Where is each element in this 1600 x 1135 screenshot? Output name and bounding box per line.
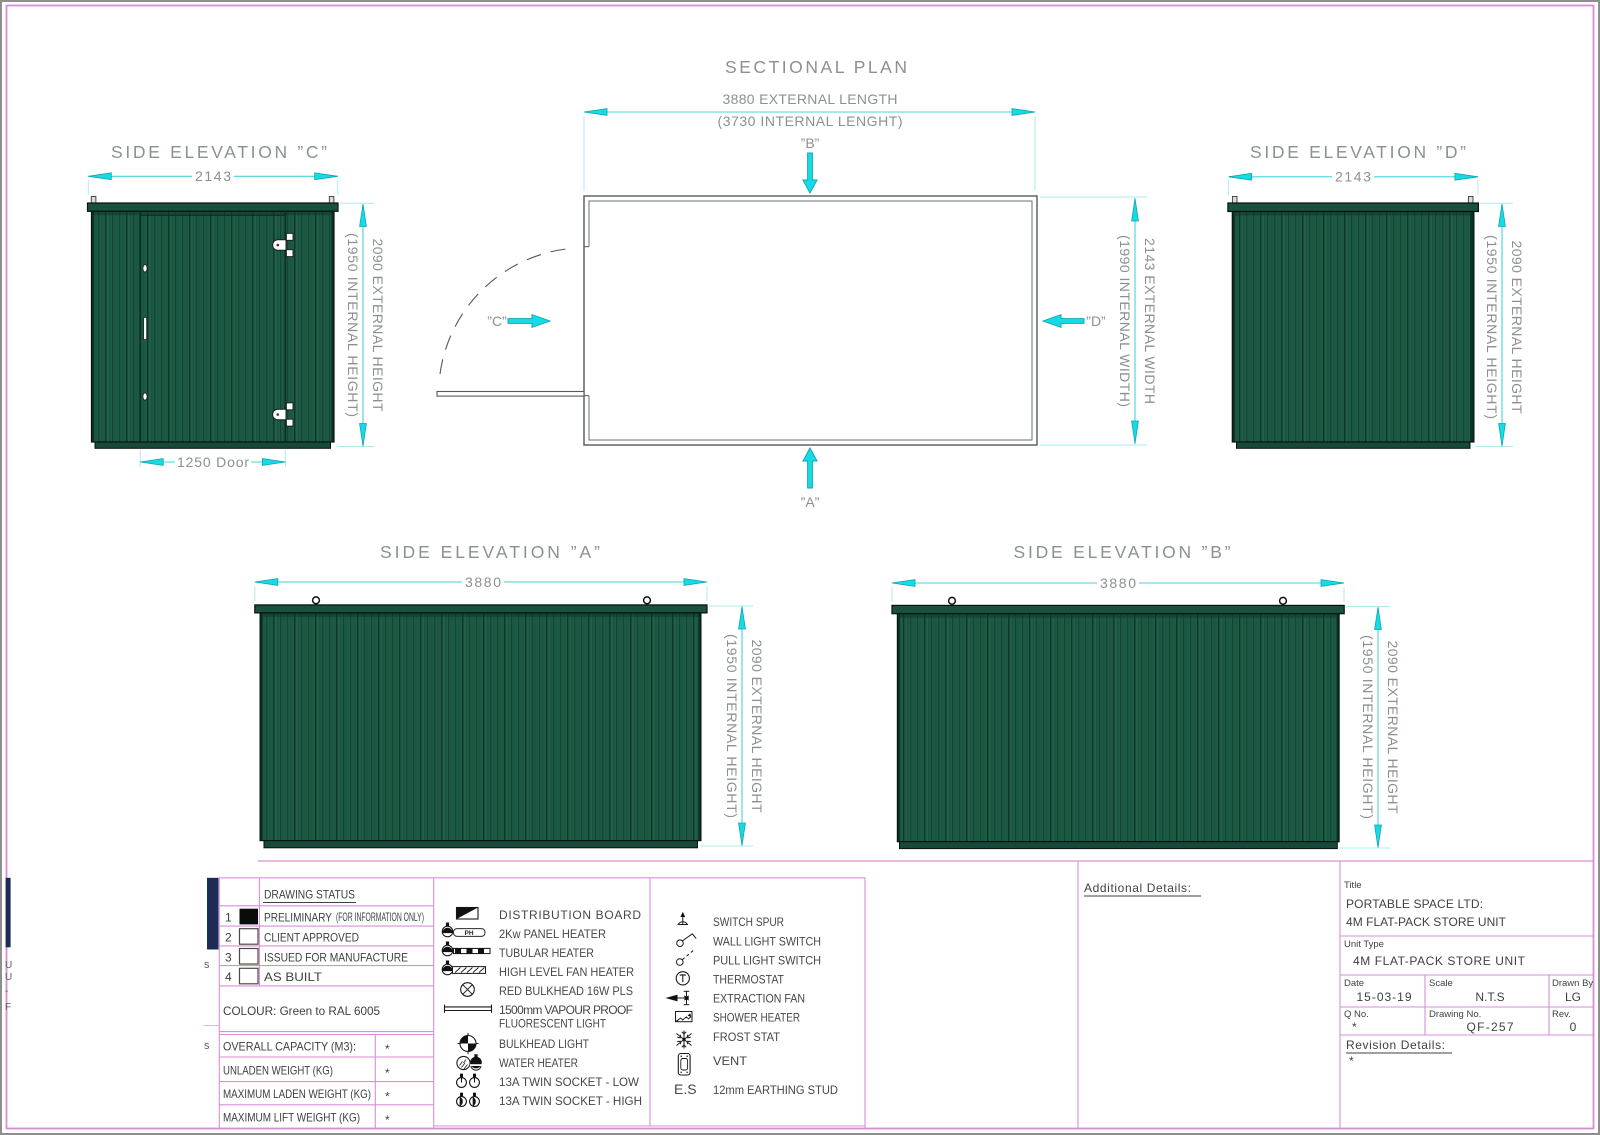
- svg-text:WATER HEATER: WATER HEATER: [499, 1056, 578, 1070]
- svg-text:U: U: [5, 972, 12, 983]
- svg-text:SWITCH SPUR: SWITCH SPUR: [713, 915, 784, 929]
- svg-text:UNLADEN WEIGHT (KG): UNLADEN WEIGHT (KG): [223, 1064, 333, 1078]
- svg-text:BULKHEAD LIGHT: BULKHEAD LIGHT: [499, 1037, 590, 1051]
- svg-text:SIDE ELEVATION ”A”: SIDE ELEVATION ”A”: [380, 542, 600, 562]
- svg-text:DRAWING STATUS: DRAWING STATUS: [264, 888, 355, 902]
- svg-text:Q No.: Q No.: [1344, 1009, 1369, 1020]
- svg-text:3880: 3880: [465, 574, 501, 590]
- svg-text:*: *: [385, 1113, 390, 1127]
- svg-text:PRELIMINARY: PRELIMINARY: [264, 911, 332, 925]
- svg-text:4: 4: [225, 970, 232, 984]
- svg-text:TUBULAR HEATER: TUBULAR HEATER: [499, 946, 594, 960]
- svg-text:15-03-19: 15-03-19: [1357, 990, 1412, 1004]
- svg-text:(3730 INTERNAL LENGHT): (3730 INTERNAL LENGHT): [718, 113, 903, 129]
- svg-text:Rev.: Rev.: [1552, 1009, 1571, 1020]
- svg-text:2090 EXTERNAL HEIGHT: 2090 EXTERNAL HEIGHT: [1385, 641, 1401, 814]
- svg-text:Scale: Scale: [1429, 978, 1453, 989]
- svg-text:4M FLAT-PACK STORE UNIT: 4M FLAT-PACK STORE UNIT: [1346, 915, 1507, 929]
- svg-text:F: F: [5, 1002, 11, 1013]
- svg-text:(1950 INTERNAL HEIGHT): (1950 INTERNAL HEIGHT): [345, 233, 361, 417]
- svg-text:2: 2: [225, 931, 232, 945]
- svg-text:(1950 INTERNAL HEIGHT): (1950 INTERNAL HEIGHT): [724, 634, 740, 818]
- svg-text:13A TWIN SOCKET - LOW: 13A TWIN SOCKET - LOW: [499, 1075, 640, 1089]
- svg-text:PULL LIGHT SWITCH: PULL LIGHT SWITCH: [713, 954, 821, 968]
- svg-text:3: 3: [225, 950, 232, 964]
- svg-text:*: *: [385, 1042, 390, 1056]
- svg-text:DISTRIBUTION BOARD: DISTRIBUTION BOARD: [499, 908, 641, 922]
- svg-text:”D”: ”D”: [1086, 313, 1106, 329]
- svg-text:”C”: ”C”: [487, 313, 507, 329]
- svg-text:SIDE ELEVATION ”B”: SIDE ELEVATION ”B”: [1014, 542, 1231, 562]
- svg-text:AS BUILT: AS BUILT: [264, 970, 323, 984]
- svg-text:2090 EXTERNAL HEIGHT: 2090 EXTERNAL HEIGHT: [370, 239, 386, 412]
- svg-text:(1950 INTERNAL HEIGHT): (1950 INTERNAL HEIGHT): [1360, 635, 1376, 819]
- svg-text:1500mm VAPOUR PROOF: 1500mm VAPOUR PROOF: [499, 1003, 633, 1017]
- svg-text:-: -: [5, 986, 8, 997]
- svg-text:*: *: [1349, 1054, 1354, 1068]
- svg-text:FLUORESCENT LIGHT: FLUORESCENT LIGHT: [499, 1017, 607, 1031]
- svg-text:WALL LIGHT SWITCH: WALL LIGHT SWITCH: [713, 935, 821, 949]
- svg-text:PH: PH: [464, 930, 473, 937]
- svg-text:2143: 2143: [1335, 169, 1371, 185]
- svg-text:MAXIMUM LADEN WEIGHT (KG): MAXIMUM LADEN WEIGHT (KG): [223, 1087, 371, 1101]
- svg-text:*: *: [1352, 1020, 1357, 1034]
- svg-text:2090 EXTERNAL HEIGHT: 2090 EXTERNAL HEIGHT: [1509, 241, 1525, 414]
- svg-text:2Kw PANEL HEATER: 2Kw PANEL HEATER: [499, 927, 606, 941]
- svg-text:VENT: VENT: [713, 1054, 748, 1068]
- svg-text:”A”: ”A”: [801, 494, 820, 510]
- svg-text:”B”: ”B”: [801, 135, 820, 151]
- svg-text:Additional Details:: Additional Details:: [1084, 881, 1191, 895]
- svg-text:Date: Date: [1344, 978, 1364, 989]
- svg-text:THERMOSTAT: THERMOSTAT: [713, 973, 785, 987]
- svg-text:Drawn By: Drawn By: [1552, 978, 1593, 989]
- svg-text:OVERALL CAPACITY (M3):: OVERALL CAPACITY (M3):: [223, 1040, 356, 1054]
- svg-text:Revision Details:: Revision Details:: [1346, 1038, 1445, 1052]
- svg-text:s: s: [204, 959, 210, 971]
- svg-text:Drawing No.: Drawing No.: [1429, 1009, 1481, 1020]
- svg-text:RED BULKHEAD 16W PLS: RED BULKHEAD 16W PLS: [499, 984, 633, 998]
- svg-text:(FOR INFORMATION ONLY): (FOR INFORMATION ONLY): [336, 910, 424, 924]
- svg-text:3880: 3880: [1100, 575, 1136, 591]
- svg-text:Unit Type: Unit Type: [1344, 939, 1384, 950]
- svg-text:12mm EARTHING STUD: 12mm EARTHING STUD: [713, 1083, 838, 1097]
- svg-text:1250 Door: 1250 Door: [177, 454, 249, 470]
- svg-text:s: s: [204, 1040, 210, 1052]
- svg-text:2090 EXTERNAL HEIGHT: 2090 EXTERNAL HEIGHT: [749, 640, 765, 813]
- svg-text:(1990 INTERNAL WIDTH): (1990 INTERNAL WIDTH): [1117, 235, 1133, 407]
- svg-text:2143: 2143: [195, 168, 231, 184]
- svg-text:(1950 INTERNAL HEIGHT): (1950 INTERNAL HEIGHT): [1484, 235, 1500, 419]
- svg-text:U: U: [5, 960, 12, 971]
- svg-text:0: 0: [1570, 1020, 1577, 1034]
- svg-text:QF-257: QF-257: [1467, 1020, 1514, 1034]
- svg-text:N.T.S: N.T.S: [1475, 990, 1504, 1004]
- svg-text:13A TWIN SOCKET - HIGH: 13A TWIN SOCKET - HIGH: [499, 1094, 642, 1108]
- svg-text:SHOWER HEATER: SHOWER HEATER: [713, 1011, 800, 1025]
- svg-text:CLIENT APPROVED: CLIENT APPROVED: [264, 931, 359, 945]
- svg-text:MAXIMUM LIFT WEIGHT (KG): MAXIMUM LIFT WEIGHT (KG): [223, 1111, 360, 1125]
- svg-text:COLOUR: Green to RAL 6005: COLOUR: Green to RAL 6005: [223, 1004, 380, 1018]
- svg-text:PORTABLE SPACE LTD:: PORTABLE SPACE LTD:: [1346, 897, 1483, 911]
- svg-text:EXTRACTION FAN: EXTRACTION FAN: [713, 992, 805, 1006]
- svg-text:Title: Title: [1344, 880, 1362, 891]
- svg-text:E.S: E.S: [674, 1081, 697, 1097]
- svg-text:HIGH LEVEL FAN HEATER: HIGH LEVEL FAN HEATER: [499, 965, 634, 979]
- svg-text:2143 EXTERNAL WIDTH: 2143 EXTERNAL WIDTH: [1142, 238, 1158, 404]
- svg-text:ISSUED FOR MANUFACTURE: ISSUED FOR MANUFACTURE: [264, 950, 408, 964]
- svg-text:FROST STAT: FROST STAT: [713, 1030, 781, 1044]
- svg-text:*: *: [385, 1066, 390, 1080]
- svg-text:4M FLAT-PACK STORE UNIT: 4M FLAT-PACK STORE UNIT: [1353, 954, 1526, 968]
- svg-text:3880 EXTERNAL LENGTH: 3880 EXTERNAL LENGTH: [723, 91, 898, 107]
- svg-text:1: 1: [225, 911, 232, 925]
- svg-text:*: *: [385, 1090, 390, 1104]
- svg-text:LG: LG: [1565, 990, 1581, 1004]
